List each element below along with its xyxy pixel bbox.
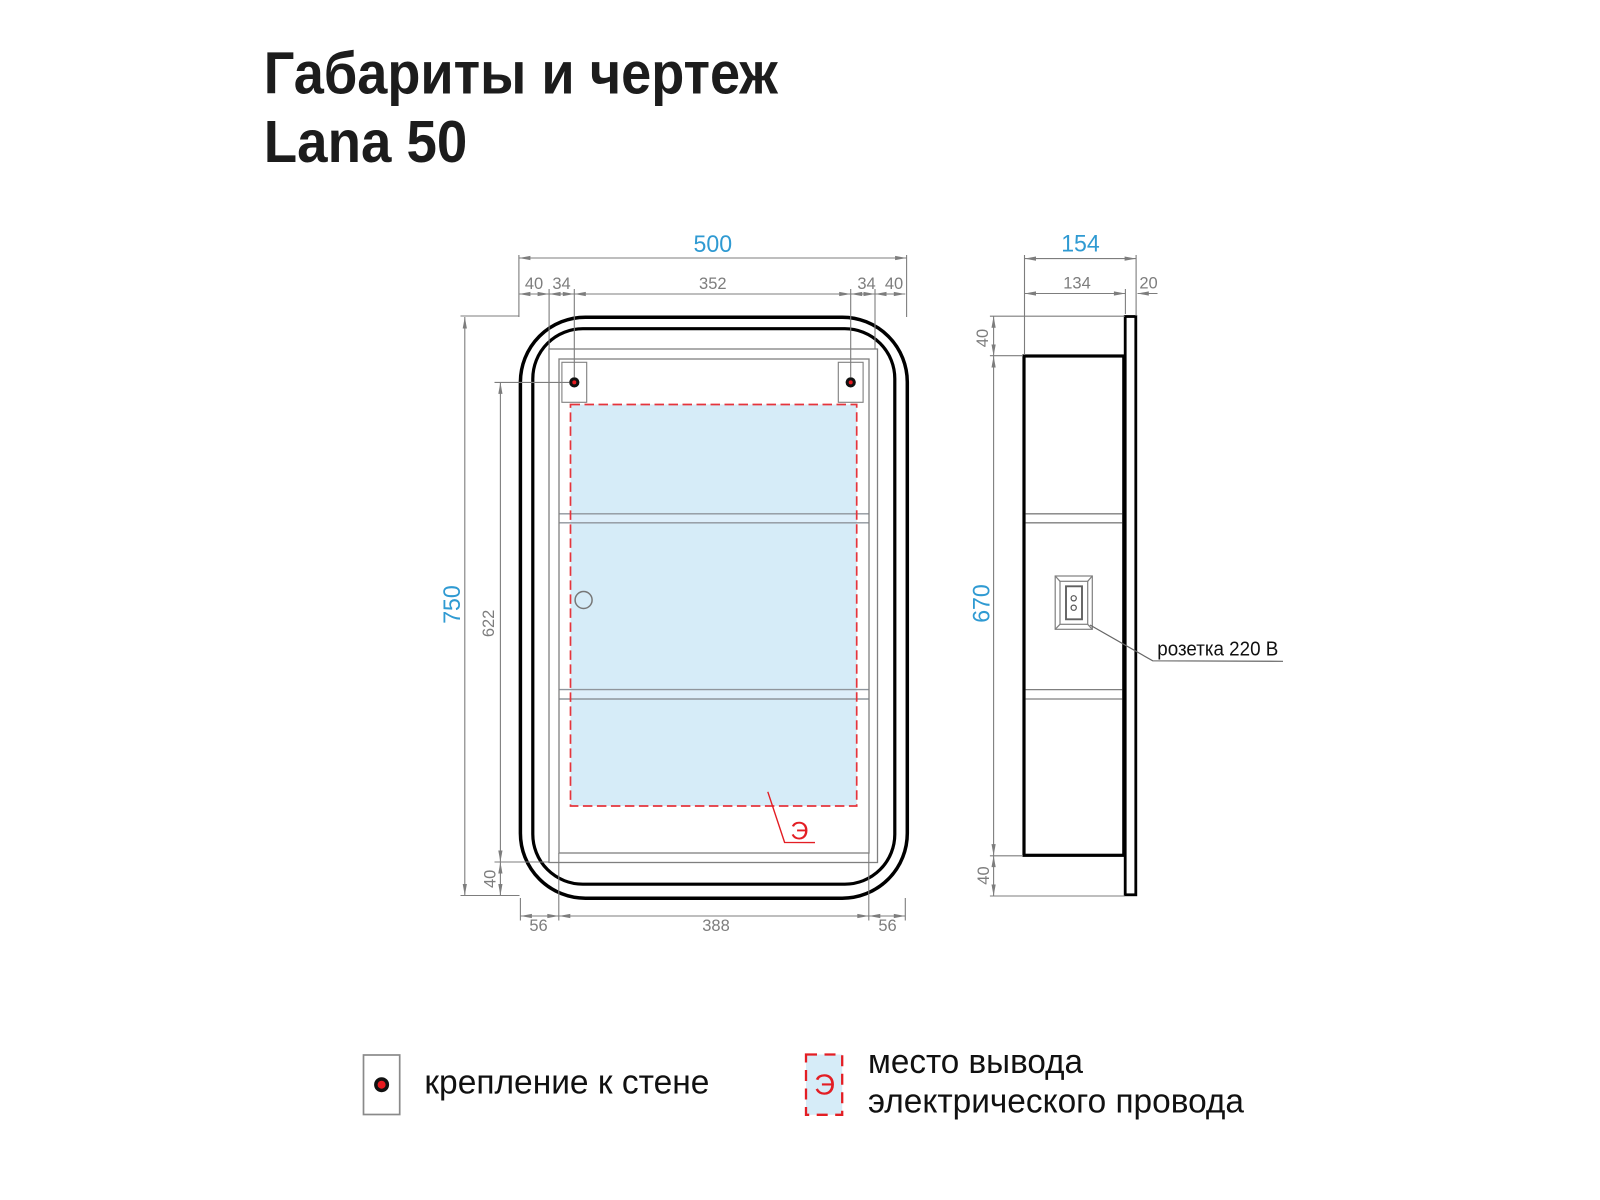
svg-text:розетка 220 В: розетка 220 В [1157, 637, 1278, 660]
svg-text:40: 40 [975, 866, 993, 884]
svg-text:34: 34 [552, 275, 570, 293]
svg-text:20: 20 [1139, 275, 1157, 293]
svg-text:750: 750 [439, 585, 466, 624]
svg-text:40: 40 [481, 870, 499, 888]
svg-text:Э: Э [790, 818, 808, 846]
svg-text:40: 40 [525, 275, 543, 293]
svg-text:56: 56 [878, 917, 896, 935]
svg-text:670: 670 [969, 584, 996, 623]
svg-text:352: 352 [699, 275, 727, 293]
svg-text:134: 134 [1063, 275, 1091, 293]
svg-text:622: 622 [480, 610, 498, 638]
svg-text:Lana 50: Lana 50 [264, 109, 468, 175]
svg-text:крепление к стене: крепление к стене [424, 1064, 709, 1102]
svg-text:место вывода: место вывода [868, 1043, 1083, 1081]
svg-text:40: 40 [974, 329, 992, 347]
svg-text:40: 40 [885, 275, 903, 293]
svg-text:500: 500 [694, 231, 733, 258]
svg-text:388: 388 [702, 917, 730, 935]
svg-text:154: 154 [1061, 231, 1100, 258]
svg-text:Э: Э [814, 1070, 835, 1102]
svg-text:электрического провода: электрического провода [868, 1083, 1244, 1121]
svg-text:Габариты и чертеж: Габариты и чертеж [264, 41, 779, 107]
svg-text:34: 34 [857, 275, 875, 293]
svg-text:56: 56 [529, 917, 547, 935]
